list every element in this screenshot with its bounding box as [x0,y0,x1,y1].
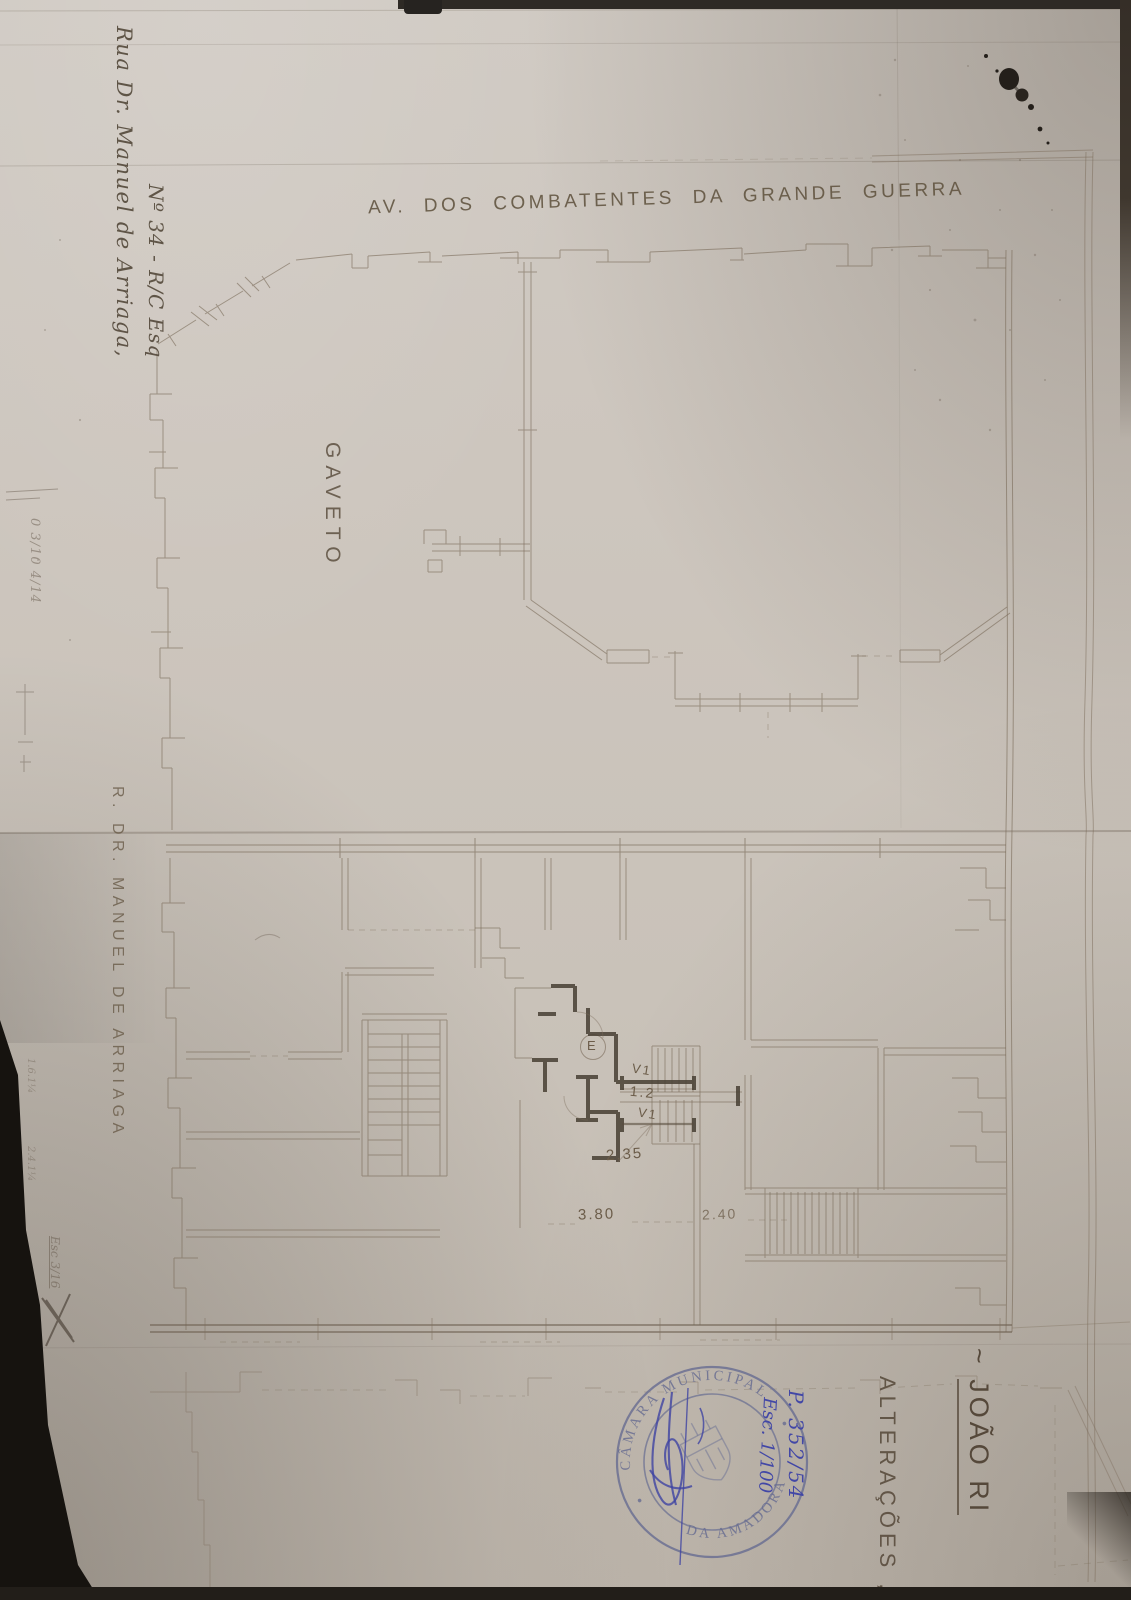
corner-plot-label: GAVETO [320,442,344,570]
tilde-mark: ~ [964,1348,994,1379]
dimension-240: 2.40 [702,1205,738,1222]
scan-edge-right [1120,0,1131,440]
scanned-floor-plan-sheet: CÂMARA MUNICIPAL DA AMADORA AV. DOS COMB… [0,0,1131,1600]
baseline-wall [150,1325,1012,1332]
owner-name-underlined: JOÃO RI [957,1379,994,1515]
scan-corner-bottom-right [1067,1492,1131,1587]
pencil-scale-note: Esc 3/16 [48,1236,62,1288]
process-number-note: P. 352/54 [784,1390,808,1500]
toner-speckles [37,59,1061,641]
window-label-v1-upper: V1 [631,1061,653,1079]
scan-edge-top [398,0,1131,9]
dim-lines-dashed [220,930,790,1342]
pencil-tally-marks [6,489,280,940]
handwritten-address-line2: Nº 34 - R/C Esq [144,184,168,358]
pencil-note-top: 0 3/10 4/14 [27,518,42,604]
baseline-ticks [205,1318,1130,1340]
site-plan-dashes [652,656,897,738]
street-label-rua: R. DR. MANUEL DE ARRIAGA [108,786,126,1139]
floor-plan-lower-block [162,858,1006,1330]
pencil-note-a: 1.6.1¼ [25,1058,36,1093]
x-mark [42,1294,74,1346]
dimension-235: 2.35 [605,1145,643,1165]
floor-plan-drawing: CÂMARA MUNICIPAL DA AMADORA [0,0,1131,1600]
elevator-label: E [587,1038,598,1053]
stamp-arc-top: CÂMARA MUNICIPAL [591,1338,775,1477]
ink-blots [984,54,1050,145]
scan-edge-top-blob [404,0,442,14]
scan-edge-bottom [0,1587,1131,1600]
dimension-380: 3.80 [578,1205,616,1223]
svg-text:CÂMARA MUNICIPAL: CÂMARA MUNICIPAL [591,1338,775,1477]
handwritten-address-line1: Rua Dr. Manuel de Arriaga, [112,26,136,358]
subject-label: ALTERAÇÕES , [874,1376,900,1595]
owner-name-label: ~ JOÃO RI [963,1348,994,1515]
mid-divide-wall [166,838,1006,858]
drawing-frame [600,150,1096,1582]
window-label-v1-lower: V1 [637,1104,659,1122]
pencil-note-b: 2.4.1¼ [25,1146,36,1181]
dimension-corridor: 1.2 [629,1083,656,1102]
